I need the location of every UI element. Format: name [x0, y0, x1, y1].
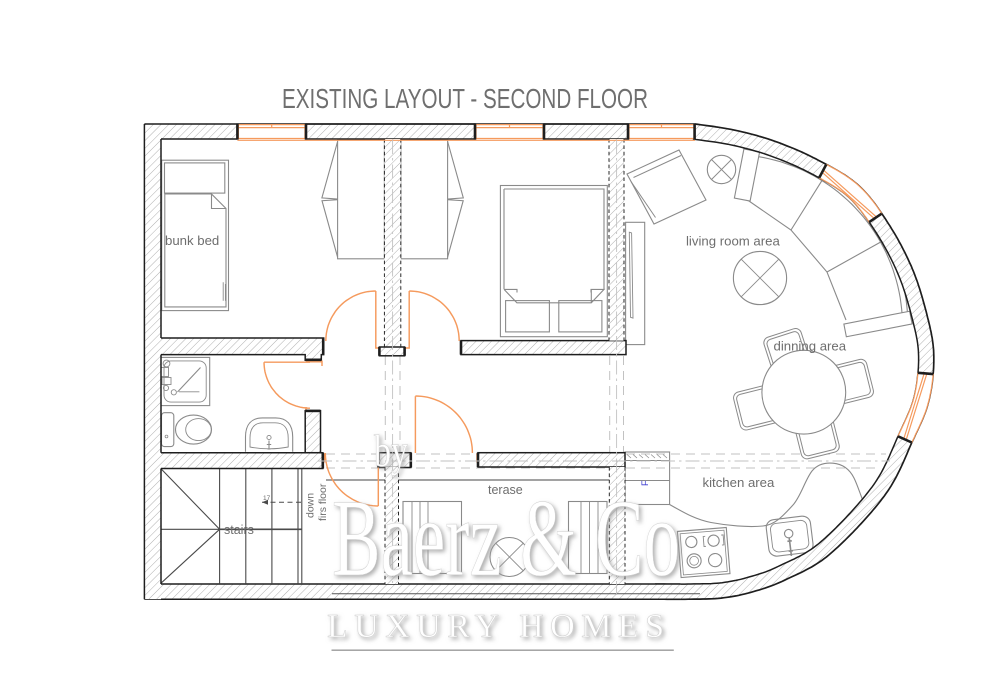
svg-text:bunk bed: bunk bed: [165, 233, 219, 248]
svg-text:stairs: stairs: [224, 523, 254, 537]
svg-text:living room area: living room area: [686, 234, 780, 249]
svg-text:down: down: [305, 493, 317, 518]
svg-text:kitchen area: kitchen area: [703, 475, 776, 490]
svg-text:dinning area: dinning area: [774, 339, 847, 354]
svg-text:LUXURY HOMES: LUXURY HOMES: [327, 608, 674, 645]
svg-text:17: 17: [263, 495, 271, 502]
svg-text:firs floor: firs floor: [317, 483, 329, 521]
svg-text:by: by: [374, 425, 408, 476]
svg-text:EXISTING LAYOUT - SECOND FLOOR: EXISTING LAYOUT - SECOND FLOOR: [282, 83, 648, 114]
svg-text:Baerz & Co: Baerz & Co: [332, 477, 680, 599]
